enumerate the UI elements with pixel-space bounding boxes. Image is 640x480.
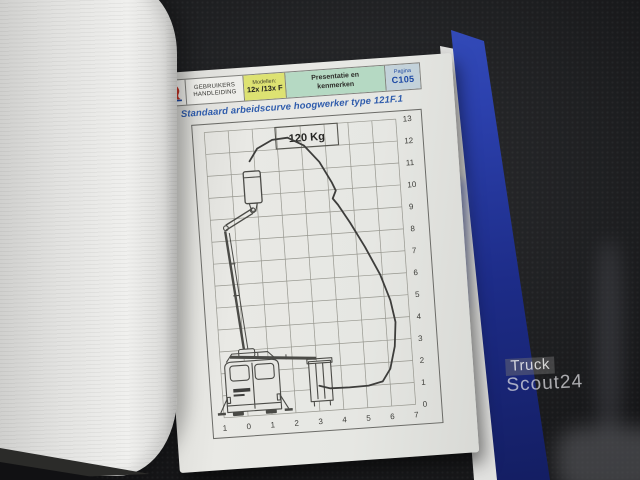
section-line2: kenmerken: [317, 80, 354, 91]
svg-text:7: 7: [412, 246, 418, 255]
svg-text:12: 12: [404, 136, 414, 146]
working-envelope-chart: 101234567131211109876543210120 Kg: [190, 107, 448, 445]
seat-corner-highlight: [556, 426, 640, 480]
svg-text:1: 1: [421, 378, 427, 387]
truckscout24-watermark: Truck Scout24: [505, 355, 584, 396]
svg-text:4: 4: [416, 312, 422, 321]
svg-text:120 Kg: 120 Kg: [288, 131, 325, 145]
svg-text:3: 3: [318, 417, 324, 426]
svg-text:0: 0: [422, 400, 428, 409]
svg-text:2: 2: [294, 419, 300, 428]
models-cell: Modellen: 12x /13x F: [243, 73, 287, 101]
svg-text:3: 3: [418, 334, 424, 343]
svg-text:1: 1: [270, 420, 276, 429]
book-pages-curl: [0, 0, 177, 476]
svg-text:7: 7: [414, 410, 420, 419]
svg-text:4: 4: [342, 415, 348, 424]
svg-text:8: 8: [410, 224, 416, 233]
svg-text:6: 6: [390, 412, 396, 421]
page-number: C105: [391, 74, 414, 86]
car-seat-background: GEBRUIKERS HANDLEIDING Modellen: 12x /13…: [0, 0, 640, 480]
svg-text:10: 10: [407, 180, 417, 190]
svg-text:1: 1: [222, 424, 228, 433]
svg-text:6: 6: [413, 268, 419, 277]
watermark-line2: Scout24: [506, 371, 584, 396]
manual-page: GEBRUIKERS HANDLEIDING Modellen: 12x /13…: [152, 53, 479, 473]
section-cell: Presentatie en kenmerken: [285, 66, 387, 98]
page-number-cell: Pagina C105: [385, 63, 421, 90]
svg-text:5: 5: [415, 290, 421, 299]
svg-text:11: 11: [406, 158, 415, 168]
manual-name: GEBRUIKERS HANDLEIDING: [185, 76, 245, 105]
svg-text:0: 0: [246, 422, 252, 431]
svg-text:5: 5: [366, 414, 372, 423]
svg-text:2: 2: [419, 356, 425, 365]
svg-text:13: 13: [402, 114, 412, 124]
seat-highlight: [596, 240, 622, 440]
svg-text:9: 9: [409, 202, 415, 211]
models-value: 12x /13x F: [247, 84, 283, 95]
